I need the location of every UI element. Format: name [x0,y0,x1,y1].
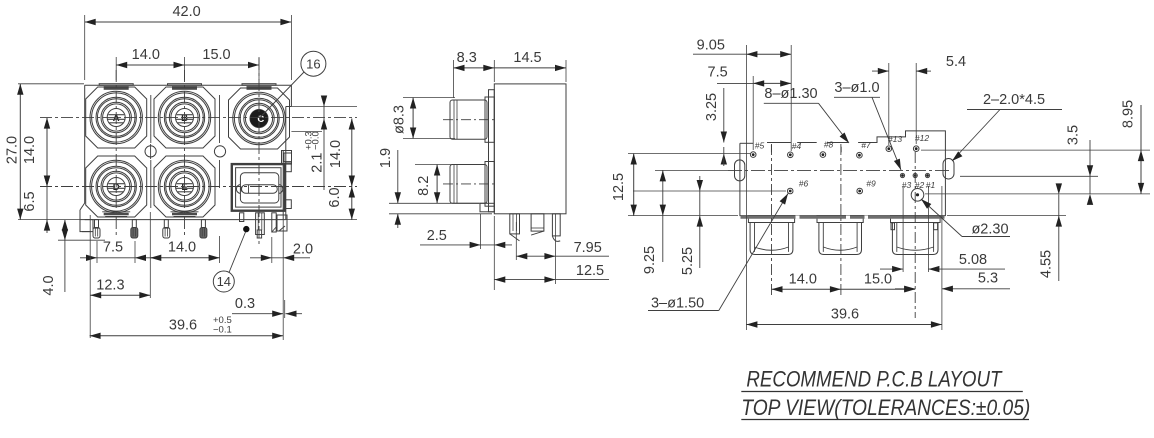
svg-text:14: 14 [217,274,231,289]
svg-text:1.9: 1.9 [378,148,394,168]
svg-text:14.0: 14.0 [22,136,38,164]
svg-text:16: 16 [306,57,320,72]
svg-text:0.3: 0.3 [235,296,255,312]
svg-text:12.3: 12.3 [96,278,124,294]
svg-text:8.95: 8.95 [1121,100,1137,128]
svg-text:3–ø1.0: 3–ø1.0 [834,80,879,96]
svg-text:4.55: 4.55 [1039,250,1055,278]
svg-text:3.5: 3.5 [1066,125,1082,145]
svg-text:5.08: 5.08 [959,252,987,268]
svg-text:2–2.0*4.5: 2–2.0*4.5 [983,92,1045,108]
svg-text:ø8.3: ø8.3 [392,105,408,134]
svg-text:3–ø1.50: 3–ø1.50 [651,296,704,312]
svg-text:6.5: 6.5 [22,191,38,211]
svg-text:2.5: 2.5 [427,228,447,244]
svg-text:TOP VIEW(TOLERANCES:±0.05): TOP VIEW(TOLERANCES:±0.05) [741,395,1030,420]
svg-text:15.0: 15.0 [864,272,892,288]
svg-text:6.0: 6.0 [327,187,343,207]
svg-text:#6: #6 [799,179,809,189]
svg-text:14.0: 14.0 [168,240,196,256]
svg-text:8.2: 8.2 [416,176,432,196]
svg-text:#5: #5 [755,141,765,151]
svg-text:12.5: 12.5 [611,173,627,201]
svg-text:2.0: 2.0 [293,242,313,258]
svg-text:#9: #9 [866,179,876,189]
svg-text:5.3: 5.3 [978,271,998,287]
svg-text:#4: #4 [792,141,802,151]
svg-text:42.0: 42.0 [172,4,200,20]
svg-text:27.0: 27.0 [4,136,20,164]
svg-text:14.5: 14.5 [513,50,541,66]
svg-text:14.0: 14.0 [132,47,160,63]
svg-text:#12: #12 [915,133,929,143]
svg-text:C: C [257,114,264,125]
svg-text:#1: #1 [926,180,936,190]
svg-text:#8: #8 [824,140,834,150]
svg-text:8–ø1.30: 8–ø1.30 [764,86,817,102]
svg-text:14.0: 14.0 [328,140,344,168]
svg-text:−0.0: −0.0 [311,131,322,150]
svg-text:39.6: 39.6 [169,318,197,334]
svg-text:#7: #7 [861,140,871,150]
svg-text:7.5: 7.5 [103,240,123,256]
svg-text:39.6: 39.6 [831,307,859,323]
svg-text:7.95: 7.95 [574,240,602,256]
svg-text:7.5: 7.5 [708,65,728,81]
svg-text:2.1: 2.1 [310,153,326,173]
svg-text:ø2.30: ø2.30 [971,222,1008,238]
svg-text:14.0: 14.0 [789,272,817,288]
svg-text:5.4: 5.4 [946,54,966,70]
svg-text:12.5: 12.5 [576,263,604,279]
svg-text:5.25: 5.25 [680,247,696,275]
svg-text:−0.1: −0.1 [213,325,232,336]
svg-text:RECOMMEND P.C.B LAYOUT: RECOMMEND P.C.B LAYOUT [746,367,1002,392]
svg-text:9.05: 9.05 [697,38,725,54]
svg-text:15.0: 15.0 [202,47,230,63]
svg-text:8.3: 8.3 [457,50,477,66]
svg-text:9.25: 9.25 [642,246,658,274]
svg-text:3.25: 3.25 [704,93,720,121]
svg-text:4.0: 4.0 [41,275,57,295]
